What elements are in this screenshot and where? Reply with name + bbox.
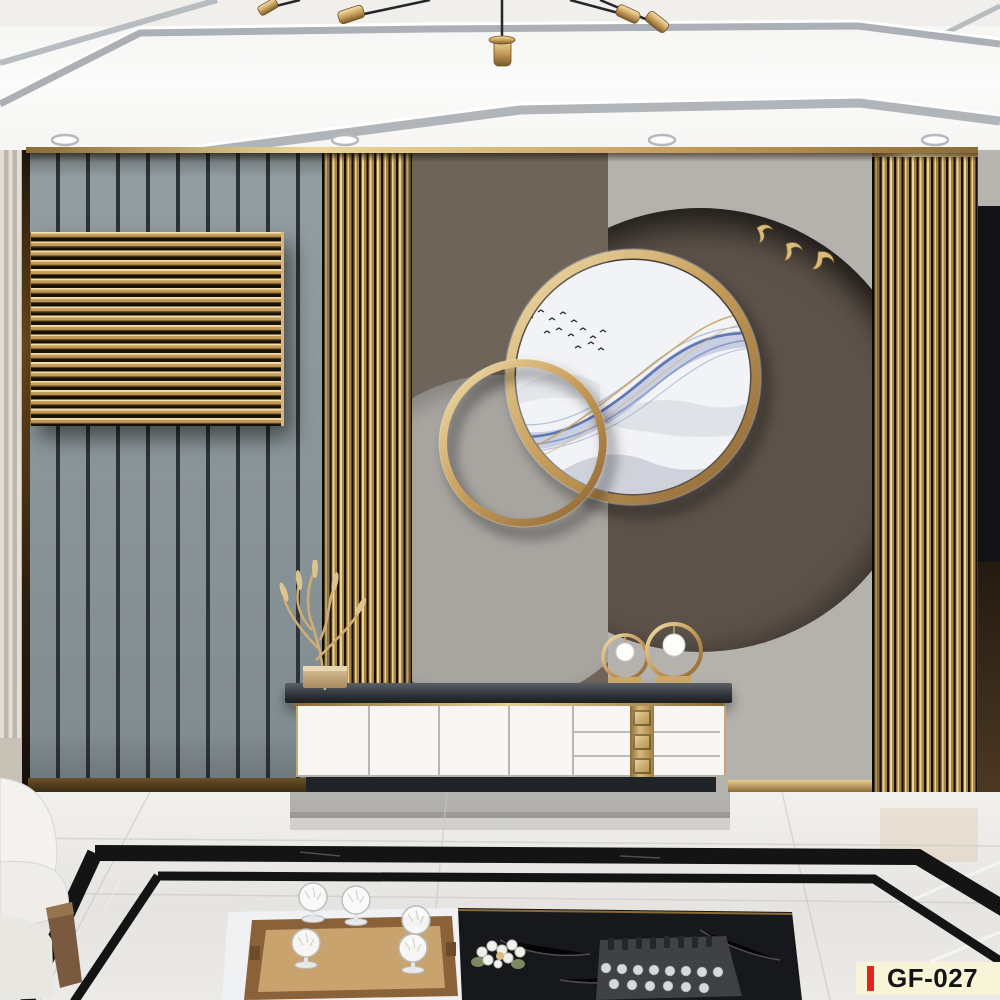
gold-slat-panel-right xyxy=(872,150,978,806)
drawer-knob xyxy=(633,734,651,750)
drawer-knob xyxy=(633,710,651,726)
ceiling-trim-and-chandelier xyxy=(0,0,1000,160)
floor-layer xyxy=(0,760,1000,1000)
gold-birds xyxy=(755,223,837,277)
ceiling-wall-shadow xyxy=(26,153,978,162)
dark-wood-edge-strip xyxy=(22,150,30,792)
product-code-text: GF-027 xyxy=(887,963,978,994)
side-passage-dark xyxy=(978,206,1000,562)
ring-ornament-large xyxy=(647,624,701,683)
living-room-photo: GF-027 xyxy=(0,0,1000,1000)
red-bar xyxy=(867,966,874,991)
ring-ornament-small xyxy=(603,635,647,683)
product-code-label: GF-027 xyxy=(856,962,1000,995)
ceiling xyxy=(0,0,1000,152)
chess-set xyxy=(596,935,742,1000)
recessed-downlights xyxy=(52,135,948,145)
cabinet-decor xyxy=(260,560,740,700)
gold-horizontal-louver-panel xyxy=(30,232,284,426)
side-wall-gray xyxy=(978,150,1000,206)
fluted-side-column xyxy=(0,150,22,792)
